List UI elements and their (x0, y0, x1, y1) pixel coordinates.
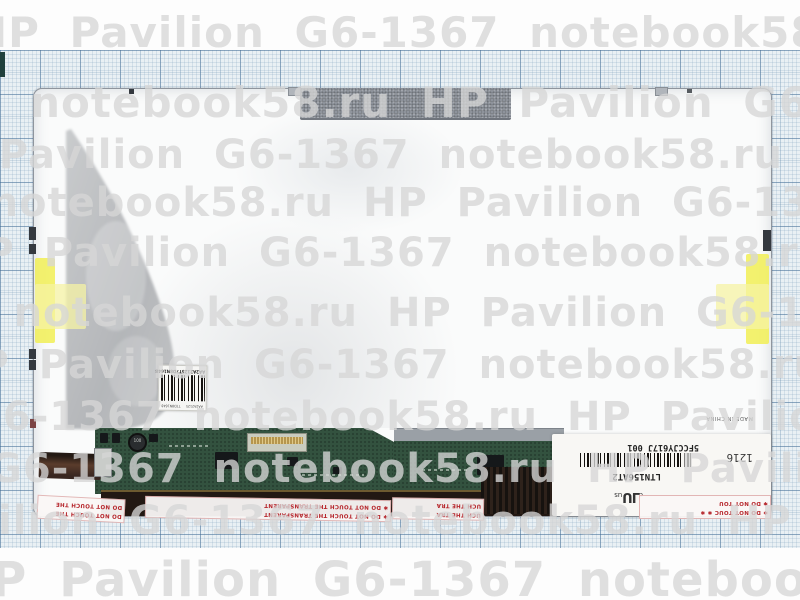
warning-tape-segment: DO NOT TOUCH THEDO NOT TOUCH THE (36, 495, 125, 524)
mount-notch (288, 87, 301, 96)
yellow-tape-left-pad (35, 284, 86, 329)
capacitor (149, 434, 158, 442)
lcd-panel-back: AA2A2125T7D8N1648 AA2A2125T7D8N1648 100 (33, 88, 772, 517)
edge-artifact (0, 52, 5, 77)
silkscreen-text (169, 445, 209, 447)
watermark-text-row: HP Pavilion G6-1367 notebook58.ru HP Pav… (0, 552, 800, 600)
flex-cable (39, 452, 102, 480)
mount-tab (29, 244, 36, 254)
capacitor (112, 433, 120, 443)
inductor-component: 100 (128, 433, 147, 452)
flex-cable-connector (94, 448, 112, 477)
date-code: 1216 (727, 451, 754, 464)
mount-tab (30, 419, 36, 428)
warning-text: ✱ DO NOT TOUC ✱ ✱ (640, 507, 770, 516)
warning-tape-segment: ✱ DO NOT TOUC ✱ ✱✱ DO NOT TOU (639, 495, 771, 519)
silkscreen-text (422, 469, 470, 471)
lvds-connector (247, 433, 307, 452)
mount-tab (29, 349, 36, 359)
ic-chip (215, 452, 238, 469)
mount-tab (763, 230, 771, 251)
mount-notch (655, 87, 668, 96)
barcode-sticker: AA2A2125T7D8N1648 AA2A2125T7D8N1648 (158, 365, 208, 412)
mount-tab (29, 227, 36, 240)
connector-pins (251, 437, 303, 444)
silkscreen-text (302, 474, 364, 476)
warning-text: UCH THE TRA (393, 508, 483, 519)
product-photo: AA2A2125T7D8N1648 AA2A2125T7D8N1648 100 (0, 0, 800, 600)
barcode-number: AA2A2125T7D8N1648 (166, 368, 206, 374)
warning-tape-segment: UCH THE TRAUCH THE TRA (392, 497, 484, 521)
barcode (160, 375, 205, 402)
barcode-subtext: AA2A2125T7D8N1648 (161, 404, 202, 409)
warning-text: UCH THE TRA (393, 499, 483, 510)
panel-sheen (234, 104, 464, 234)
ic-chip (333, 467, 342, 474)
edge-mark (687, 89, 692, 93)
edge-mark (129, 89, 134, 94)
mount-tab (29, 360, 36, 370)
protective-film-reflection (56, 126, 256, 436)
ic-chip (287, 457, 298, 466)
capacitor (100, 433, 108, 443)
yellow-tape-right-pad (716, 284, 769, 329)
pcb-corner-cut (368, 428, 394, 442)
model-number: LTN156AT2 (612, 471, 661, 481)
made-in-china-text: MADE IN CHINA (706, 415, 753, 421)
serial-barcode (579, 453, 691, 467)
warning-text: ✱ DO NOT TOU (640, 498, 770, 507)
warning-tape-segment: ✱ DO NOT TOUCH THE TRANSPARENT✱ DO NOT T… (145, 496, 391, 522)
serial-number: 5FCCJY617J 001 (627, 442, 699, 452)
